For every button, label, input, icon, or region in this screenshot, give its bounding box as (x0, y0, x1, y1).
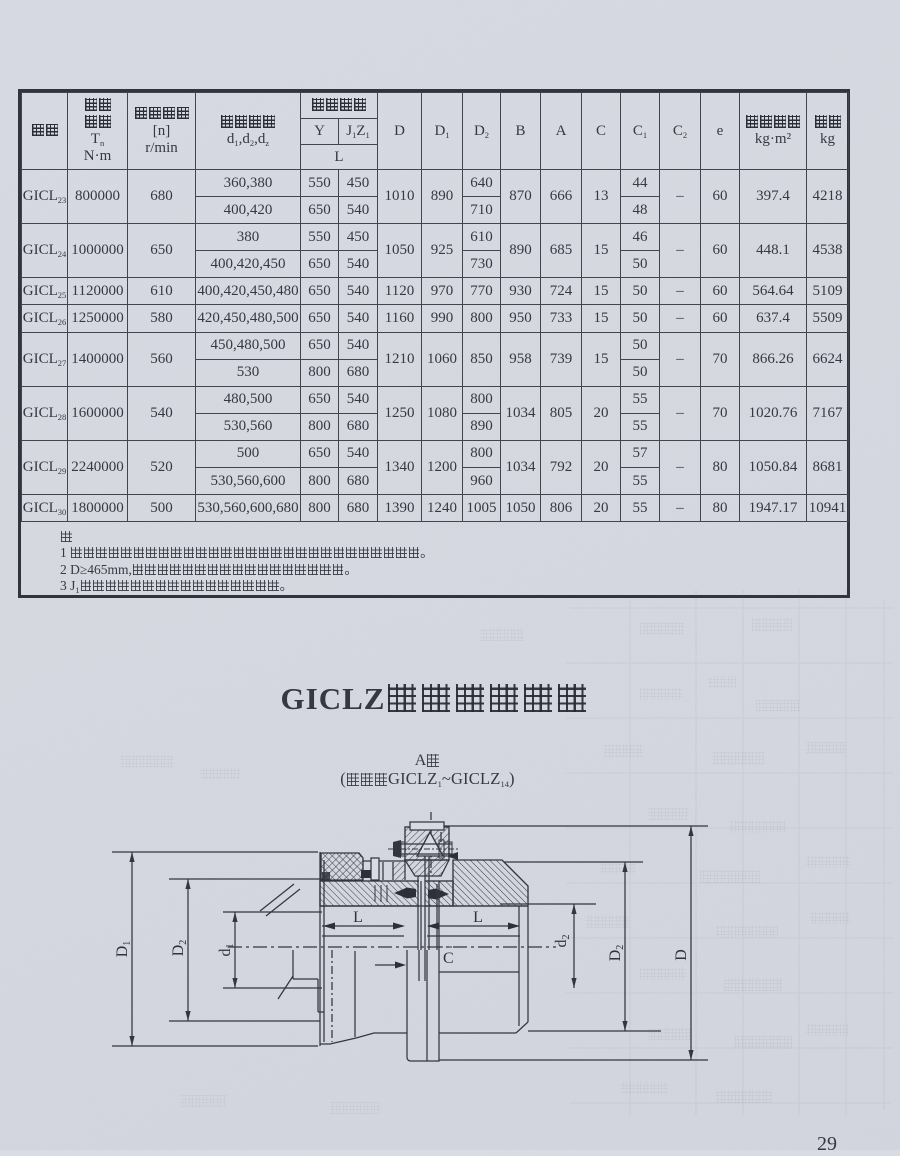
svg-text:L: L (353, 909, 363, 926)
svg-text:C: C (443, 950, 454, 967)
svg-text:D: D (673, 949, 690, 961)
svg-text:L: L (473, 909, 483, 926)
